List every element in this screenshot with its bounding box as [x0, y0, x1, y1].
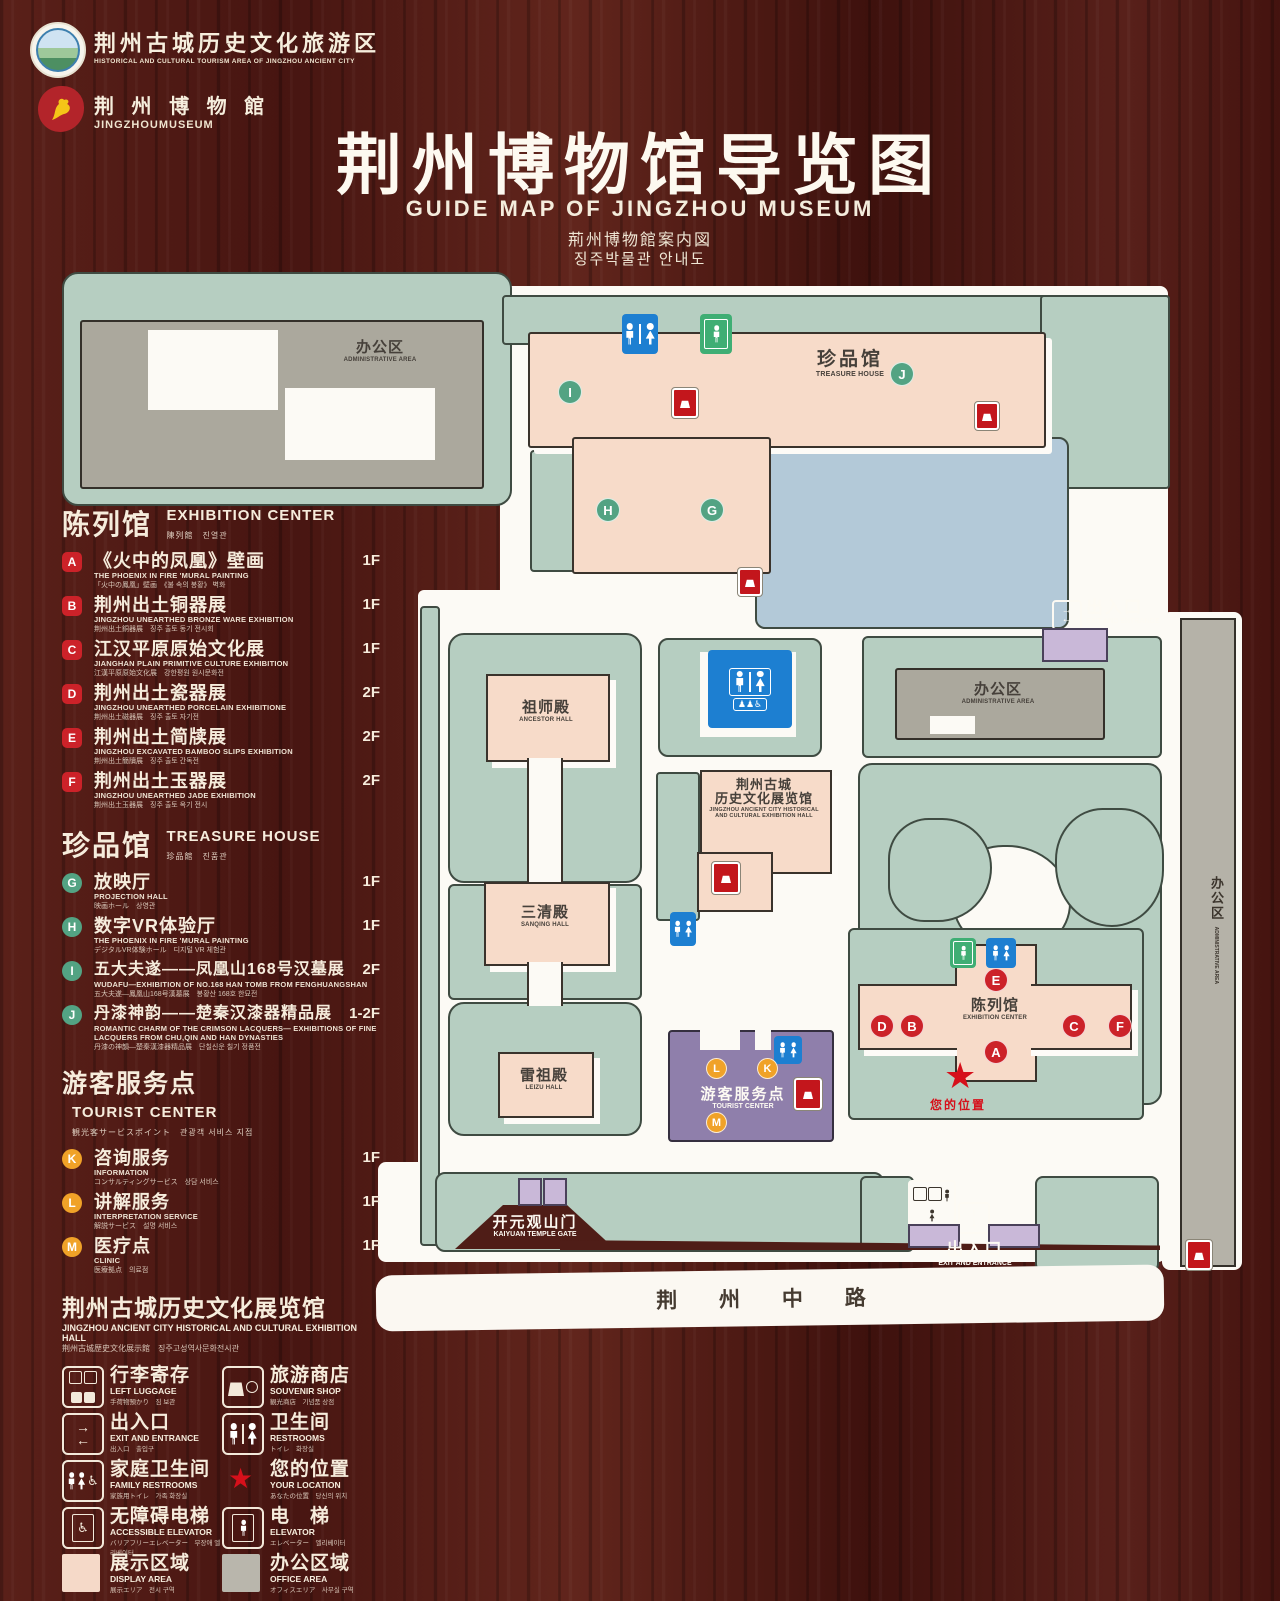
page-subtitle-ja: 荊州博物館案内図 [0, 226, 1280, 250]
legend-sidebar: 陈列馆 EXHIBITION CENTER 陳列館 진열관 A 《火中的凤凰》壁… [62, 503, 380, 1601]
legend-accessible-elevator: ♿ 无障碍电梯 ACCESSIBLE ELEVATOR バリアフリーエレベーター… [62, 1507, 222, 1554]
page-subtitle-ko: 징주박물관 안내도 [0, 248, 1280, 269]
legend-item-G: G 放映厅 PROJECTION HALL 映画ホール 상영관 1F [62, 872, 380, 911]
ancestor-hall-label: 祖师殿 ANCESTOR HALL [486, 700, 606, 723]
legend-item-D: D 荆州出土瓷器展 JINGZHOU UNEARTHED PORCELAIN E… [62, 683, 380, 722]
elevator-icon [950, 938, 976, 968]
marker-E: E [984, 968, 1008, 992]
souvenir-shop-marker-icon [712, 862, 740, 894]
marker-M: M [706, 1112, 727, 1133]
legend-office-area: 办公区域 OFFICE AREA オフィスエリア 사무실 구역 [222, 1554, 380, 1601]
legend-item-E: E 荆州出土简牍展 JINGZHOU EXCAVATED BAMBOO SLIP… [62, 727, 380, 766]
legend-souvenir-shop: 旅游商店 SOUVENIR SHOP 観光商店 기념품 상점 [222, 1366, 380, 1413]
legend-item-A: A 《火中的凤凰》壁画 THE PHOENIX IN FIRE 'MURAL P… [62, 551, 380, 590]
restroom-icon [774, 1036, 802, 1064]
ancient-city-hall-label: 荆州古城 历史文化展览馆 JINGZHOU ANCIENT CITY HISTO… [698, 778, 830, 819]
exit-entrance-icon: →← [1052, 600, 1082, 630]
tourist-center-label: 游客服务点 TOURIST CENTER [668, 1086, 818, 1111]
page-title: 荆州博物馆导览图 [0, 112, 1280, 208]
souvenir-shop-marker-icon [738, 568, 762, 596]
garden-islet-east [1055, 808, 1164, 927]
legend-item-C: C 江汉平原原始文化展 JIANGHAN PLAIN PRIMITIVE CUL… [62, 639, 380, 678]
legend-elevator: 电 梯 ELEVATOR エレベーター 엘리베이터 [222, 1507, 380, 1554]
marker-C: C [1062, 1014, 1086, 1038]
restroom-icon [986, 938, 1016, 968]
marker-F: F [1108, 1014, 1132, 1038]
marker-H: H [596, 498, 620, 522]
souvenir-shop-icon [222, 1366, 264, 1408]
your-location-star-icon: ★ [228, 1462, 253, 1495]
souvenir-shop-marker-icon [1186, 1240, 1212, 1270]
legend-item-H: H 数字VR体验厅 THE PHOENIX IN FIRE 'MURAL PAI… [62, 916, 380, 955]
legend-item-J: J 丹漆神韵——楚秦汉漆器精品展 ROMANTIC CHARM OF THE C… [62, 1004, 380, 1052]
gate-kiosk [518, 1178, 542, 1206]
restroom-icon [622, 314, 658, 354]
legend-section-treasure: 珍品馆 TREASURE HOUSE 珍品館 진품관 [62, 824, 380, 864]
legend-restrooms: 卫生间 RESTROOMS トイレ 화장실 [222, 1413, 380, 1460]
accessible-elevator-icon: ♿ [62, 1507, 104, 1549]
exhibition-center-label: 陈列馆 EXHIBITION CENTER [930, 998, 1060, 1021]
exit-entrance-icon: ↑↓ [958, 1202, 990, 1234]
west-wall [420, 606, 440, 1246]
gate-kiosk [543, 1178, 567, 1206]
temple-corridor-2 [527, 962, 563, 1006]
admin-nw-notch2 [285, 388, 435, 460]
admin-right-label: 办公区 ADMINISTRATIVE AREA [918, 682, 1078, 705]
legend-item-L: L 讲解服务 INTERPRETATION SERVICE 解説サービス 설명 … [62, 1192, 380, 1231]
marker-B: B [900, 1014, 924, 1038]
restroom-icon [670, 912, 696, 946]
family-restroom-icon: ♟♟♿ [733, 698, 767, 711]
kaiyuan-gate-label: 开元观山门 KAIYUAN TEMPLE GATE [455, 1214, 615, 1239]
tourism-area-logo-icon [30, 22, 86, 78]
tourist-center-notch1 [700, 1026, 740, 1050]
family-restroom-block: ♟♟♿ [708, 650, 792, 728]
admin-r-notch [930, 716, 975, 734]
display-area-swatch [62, 1554, 100, 1592]
family-restroom-icon: ♿ [62, 1460, 104, 1502]
office-area-swatch [222, 1554, 260, 1592]
tourist-center-notch2 [755, 1026, 771, 1050]
legend-item-M: M 医疗点 CLINIC 医療拠点 의료점 1F [62, 1236, 380, 1275]
your-location-label: 您的位置 [930, 1096, 986, 1113]
admin-nw-notch1 [148, 330, 278, 410]
admin-northwest-label: 办公区 ADMINISTRATIVE AREA [300, 340, 460, 363]
legend-left-luggage: 行李寄存 LEFT LUGGAGE 手荷物預かり 짐 보관 [62, 1366, 222, 1413]
marker-A-badge: A [62, 552, 82, 572]
treasure-west-garden [530, 450, 576, 572]
south-apron-east [1035, 1176, 1159, 1272]
sanqing-hall-label: 三清殿 SANQING HALL [484, 905, 606, 928]
legend-section-tourist: 游客服务点 TOURIST CENTER 観光客サービスポイント 관광객 서비스… [62, 1064, 380, 1140]
souvenir-shop-marker-icon [672, 388, 698, 418]
ancient-city-hall-legend-title: 荆州古城历史文化展览馆 JINGZHOU ANCIENT CITY HISTOR… [62, 1289, 380, 1354]
marker-L: L [706, 1058, 727, 1079]
temple-corridor [527, 758, 563, 886]
legend-family-restrooms: ♿ 家庭卫生间 FAMILY RESTROOMS 家族用トイレ 가족 화장실 [62, 1460, 222, 1507]
legend-display-area: 展示区域 DISPLAY AREA 展示エリア 전시 구역 [62, 1554, 222, 1601]
leizu-hall-label: 雷祖殿 LEIZU HALL [498, 1068, 590, 1091]
left-luggage-icon [62, 1366, 104, 1408]
page-subtitle-en: GUIDE MAP OF JINGZHOU MUSEUM [0, 196, 1280, 222]
left-luggage-marker-icon [908, 1180, 956, 1228]
marker-I: I [558, 380, 582, 404]
tourism-area-name-en: HISTORICAL AND CULTURAL TOURISM AREA OF … [94, 58, 514, 65]
elevator-icon [700, 314, 732, 354]
legend-your-location: ★ 您的位置 YOUR LOCATION あなたの位置 당신의 위치 [222, 1460, 380, 1507]
marker-A: A [984, 1040, 1008, 1064]
marker-K: K [757, 1058, 778, 1079]
legend-item-B: B 荆州出土铜器展 JINGZHOU UNEARTHED BRONZE WARE… [62, 595, 380, 634]
souvenir-shop-marker-icon [975, 402, 999, 430]
north-gate-building [1042, 628, 1108, 662]
lake [755, 437, 1069, 629]
elevator-icon [222, 1507, 264, 1549]
admin-strip-label: 办公区 ADMINISTRATIVE AREA [1186, 850, 1226, 1010]
exhibition-hall-west-garden [656, 772, 700, 921]
your-location-star-icon: ★ [944, 1058, 976, 1094]
exit-entrance-icon: →← [62, 1413, 104, 1455]
marker-G: G [700, 498, 724, 522]
legend-exit-entrance: →← 出入口 EXIT AND ENTRANCE 出入口 출입구 [62, 1413, 222, 1460]
restroom-icon [222, 1413, 264, 1455]
legend-item-I: I 五大夫遂——凤凰山168号汉墓展 WUDAFU—EXHIBITION OF … [62, 960, 380, 999]
legend-section-exhibition: 陈列馆 EXHIBITION CENTER 陳列館 진열관 [62, 503, 380, 543]
tourism-area-logo [30, 22, 86, 78]
road-label: 荆 州 中 路 [656, 1281, 884, 1314]
legend-icon-grid: 行李寄存 LEFT LUGGAGE 手荷物預かり 짐 보관 旅游商店 SOUVE… [62, 1366, 380, 1601]
road: 荆 州 中 路 [376, 1265, 1165, 1332]
legend-item-F: F 荆州出土玉器展 JINGZHOU UNEARTHED JADE EXHIBI… [62, 771, 380, 810]
tourism-area-name: 荆州古城历史文化旅游区 [94, 26, 514, 58]
marker-D: D [870, 1014, 894, 1038]
marker-J: J [890, 362, 914, 386]
legend-item-K: K 咨询服务 INFORMATION コンサルティングサービス 상담 서비스 1… [62, 1148, 380, 1187]
exit-bottom-label: 出入口 EXIT AND ENTRANCE [900, 1240, 1050, 1268]
